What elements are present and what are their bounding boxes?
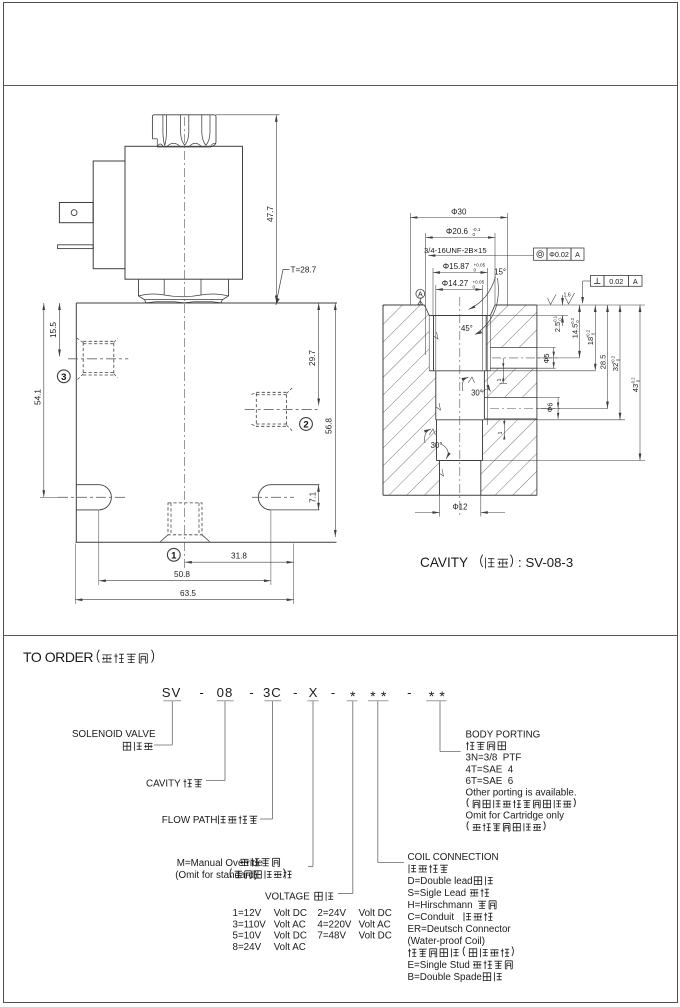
svg-text:28.5: 28.5 <box>598 355 607 370</box>
svg-text:3=110V: 3=110V <box>233 919 267 930</box>
svg-text:7=48V: 7=48V <box>317 931 346 942</box>
svg-text:FLOW PATH: FLOW PATH <box>162 815 218 826</box>
svg-text:TO ORDER: TO ORDER <box>23 649 93 665</box>
svg-text:T=28.7: T=28.7 <box>291 266 317 275</box>
svg-text:ER=Deutsch Connector: ER=Deutsch Connector <box>408 924 512 935</box>
svg-text:-: - <box>331 685 335 700</box>
svg-text:*: * <box>381 689 387 705</box>
svg-text:BODY PORTING: BODY PORTING <box>466 730 541 741</box>
svg-text:1: 1 <box>171 550 177 561</box>
svg-text:-: - <box>199 685 203 700</box>
svg-text:Volt DC: Volt DC <box>359 931 392 942</box>
svg-text:3N=3/8 PTF: 3N=3/8 PTF <box>466 753 522 764</box>
svg-text:8=24V: 8=24V <box>233 942 262 953</box>
svg-text:3: 3 <box>61 372 66 383</box>
svg-text:4T=SAE 4: 4T=SAE 4 <box>466 764 514 775</box>
svg-text:H=Hirschmann: H=Hirschmann <box>408 900 473 911</box>
svg-text:5=10V: 5=10V <box>233 931 262 942</box>
svg-text:30°: 30° <box>431 441 443 450</box>
svg-text:-: - <box>293 685 297 700</box>
svg-text:1: 1 <box>498 432 504 435</box>
svg-text:30°: 30° <box>471 389 483 398</box>
svg-text:Volt DC: Volt DC <box>274 908 307 919</box>
svg-text:Volt AC: Volt AC <box>359 919 391 930</box>
svg-text:15.5: 15.5 <box>49 322 58 338</box>
svg-text:(Water-proof Coil): (Water-proof Coil) <box>408 936 485 947</box>
svg-text:Φ0.02: Φ0.02 <box>549 250 569 259</box>
svg-text:1.6: 1.6 <box>564 293 571 299</box>
svg-text:A: A <box>575 250 580 259</box>
svg-text:2: 2 <box>303 420 308 431</box>
svg-text:*: * <box>370 689 376 705</box>
svg-text:D=Double lead: D=Double lead <box>408 876 473 887</box>
svg-text:2=24V: 2=24V <box>317 908 346 919</box>
svg-text:Φ20.6: Φ20.6 <box>446 227 469 236</box>
svg-text:B=Double Spade: B=Double Spade <box>408 972 483 983</box>
svg-text::: : <box>518 555 522 570</box>
svg-text:Volt DC: Volt DC <box>274 931 307 942</box>
svg-text:COIL CONNECTION: COIL CONNECTION <box>408 852 499 863</box>
svg-text:Other porting is available.: Other porting is available. <box>466 788 577 799</box>
svg-text:3C: 3C <box>263 685 282 700</box>
svg-text:X: X <box>309 685 318 700</box>
svg-text:Φ30: Φ30 <box>451 207 467 216</box>
svg-text:Volt AC: Volt AC <box>274 942 306 953</box>
svg-text:7.1: 7.1 <box>308 492 317 503</box>
svg-text:45°: 45° <box>461 324 473 333</box>
svg-text:-: - <box>407 685 411 700</box>
svg-text:Φ14.27: Φ14.27 <box>442 279 469 288</box>
svg-text:1: 1 <box>497 379 503 382</box>
svg-text:Volt AC: Volt AC <box>274 919 306 930</box>
svg-text:Φ12: Φ12 <box>453 503 468 512</box>
svg-text:15°: 15° <box>494 268 506 277</box>
svg-text:1=12V: 1=12V <box>233 908 262 919</box>
svg-text:63.5: 63.5 <box>180 589 196 598</box>
svg-text:SOLENOID VALVE: SOLENOID VALVE <box>72 729 156 740</box>
svg-text:E=Single Stud: E=Single Stud <box>408 960 470 971</box>
svg-text:-: - <box>249 685 253 700</box>
svg-text:0.02: 0.02 <box>609 277 623 286</box>
svg-text:Omit for Cartridge only: Omit for Cartridge only <box>466 811 565 822</box>
svg-text:0: 0 <box>473 284 476 289</box>
svg-text:C=Conduit: C=Conduit <box>408 912 455 923</box>
svg-text:0: 0 <box>473 232 476 237</box>
svg-text:4=220V: 4=220V <box>317 919 352 930</box>
svg-text:CAVITY: CAVITY <box>420 555 468 570</box>
svg-text:31.8: 31.8 <box>231 551 247 560</box>
svg-text:SV-08-3: SV-08-3 <box>526 555 574 570</box>
svg-text:29.7: 29.7 <box>308 350 317 366</box>
svg-text:VOLTAGE: VOLTAGE <box>265 892 310 903</box>
svg-text:Volt DC: Volt DC <box>359 908 392 919</box>
svg-text:50.8: 50.8 <box>174 570 190 579</box>
svg-text:*: * <box>429 689 435 705</box>
svg-text:A: A <box>633 277 638 286</box>
svg-text:SV: SV <box>162 685 182 700</box>
svg-text:Φ6: Φ6 <box>546 403 555 413</box>
svg-text:3/4-16UNF-2B×15: 3/4-16UNF-2B×15 <box>424 246 487 255</box>
svg-text:M=Manual Override: M=Manual Override <box>177 858 264 869</box>
svg-text:54.1: 54.1 <box>33 389 42 405</box>
svg-text:Φ5: Φ5 <box>542 354 551 364</box>
svg-text:6T=SAE 6: 6T=SAE 6 <box>466 776 514 787</box>
svg-text:CAVITY: CAVITY <box>146 779 181 790</box>
svg-text:47.7: 47.7 <box>266 206 275 222</box>
svg-text:08: 08 <box>217 685 234 700</box>
svg-text:0: 0 <box>474 267 477 272</box>
svg-text:56.8: 56.8 <box>325 418 334 434</box>
svg-text:Φ15.87: Φ15.87 <box>443 262 470 271</box>
svg-text:S=Sigle Lead: S=Sigle Lead <box>408 888 467 899</box>
svg-text:A: A <box>418 292 423 299</box>
